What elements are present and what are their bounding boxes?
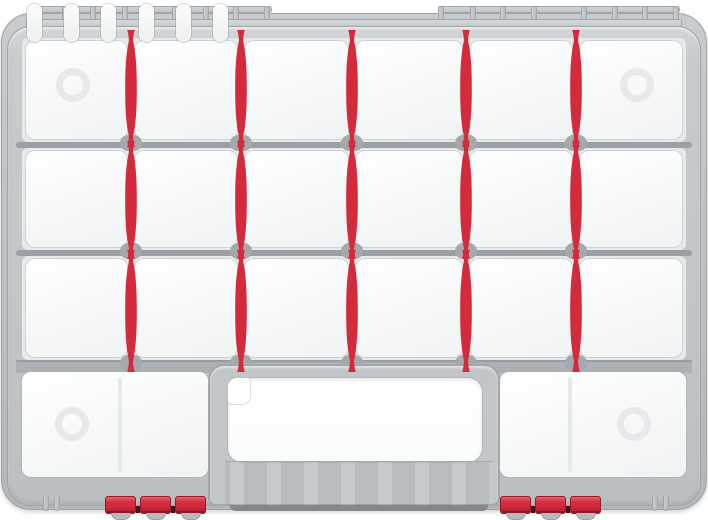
compartment <box>26 259 127 357</box>
grip-slot <box>176 4 191 42</box>
latch-foot-scallop <box>506 513 526 520</box>
grip-slot <box>64 4 79 42</box>
grip-slot <box>27 4 42 42</box>
large-compartment <box>500 372 686 477</box>
red-divider <box>345 141 359 259</box>
latch-segment <box>140 496 171 514</box>
latch-foot-scallop <box>541 513 561 520</box>
foot-hook <box>43 496 49 511</box>
latch-foot-scallop <box>181 513 201 520</box>
red-divider <box>124 141 138 259</box>
red-divider <box>569 141 583 259</box>
latch-segment <box>105 496 136 514</box>
compartment <box>26 151 127 247</box>
red-divider <box>234 30 248 147</box>
compartment <box>245 151 348 247</box>
compartment-mold-line <box>118 377 122 472</box>
red-divider <box>345 250 359 372</box>
red-divider <box>124 30 138 147</box>
latch <box>105 496 206 520</box>
compartment <box>580 151 682 247</box>
compartment <box>580 259 682 357</box>
grip-slot <box>213 4 228 42</box>
compartment <box>470 41 572 139</box>
corner-recess <box>617 407 651 441</box>
latch-foot-scallop <box>146 513 166 520</box>
latch <box>500 496 601 520</box>
foot-hook <box>652 496 658 511</box>
compartment-mold-line <box>568 377 572 472</box>
handle-cutout <box>228 378 482 462</box>
compartment <box>470 259 572 357</box>
large-compartment <box>22 372 208 477</box>
compartment <box>470 151 572 247</box>
corner-recess <box>620 68 654 102</box>
handle-cutout-notch <box>228 378 250 404</box>
foot-hook <box>663 496 669 511</box>
red-divider <box>569 250 583 372</box>
red-divider <box>459 30 473 147</box>
latch-segment <box>175 496 206 514</box>
corner-recess <box>55 407 89 441</box>
red-divider <box>234 250 248 372</box>
foot-hook <box>54 496 60 511</box>
compartment <box>135 41 237 139</box>
corner-recess <box>56 68 90 102</box>
latch-segment <box>570 496 601 514</box>
red-divider <box>345 30 359 147</box>
handle-grip <box>225 461 493 506</box>
red-divider <box>459 250 473 372</box>
compartment <box>245 259 348 357</box>
grip-slot <box>101 4 116 42</box>
compartment <box>135 259 237 357</box>
compartment <box>356 41 462 139</box>
grip-slot <box>139 4 154 42</box>
red-divider <box>459 141 473 259</box>
compartment <box>356 151 462 247</box>
latch-foot-scallop <box>576 513 596 520</box>
organizer-case-image <box>0 0 708 520</box>
red-divider <box>234 141 248 259</box>
latch-segment <box>500 496 531 514</box>
handle-under-shadow <box>230 505 488 511</box>
latch-segment <box>535 496 566 514</box>
compartment <box>356 259 462 357</box>
compartment <box>135 151 237 247</box>
red-divider <box>124 250 138 372</box>
latch-foot-scallop <box>111 513 131 520</box>
red-divider <box>569 30 583 147</box>
compartment <box>245 41 348 139</box>
